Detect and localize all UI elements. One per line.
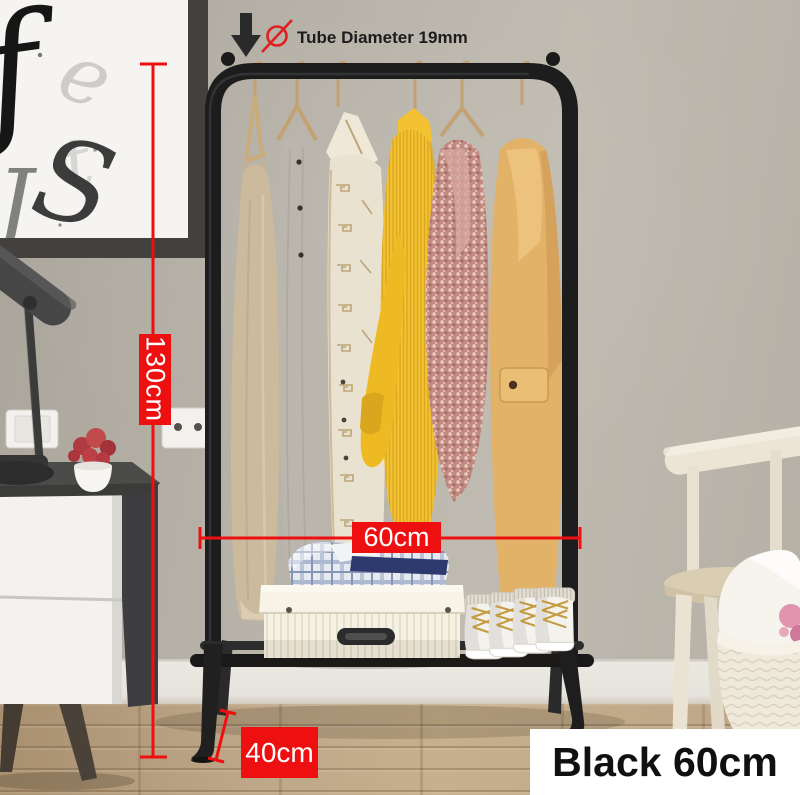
diameter-icon — [262, 20, 292, 52]
tube-diameter-label: Tube Diameter 19mm — [297, 27, 468, 49]
width-dimension-label: 60cm — [352, 522, 441, 553]
height-dimension-label: 130cm — [139, 334, 171, 425]
depth-dimension-label: 40cm — [241, 727, 318, 778]
variant-label: Black 60cm — [530, 729, 800, 795]
down-arrow-icon — [231, 13, 261, 57]
dimension-annotations — [0, 0, 800, 795]
product-photo: f S J e t — [0, 0, 800, 795]
